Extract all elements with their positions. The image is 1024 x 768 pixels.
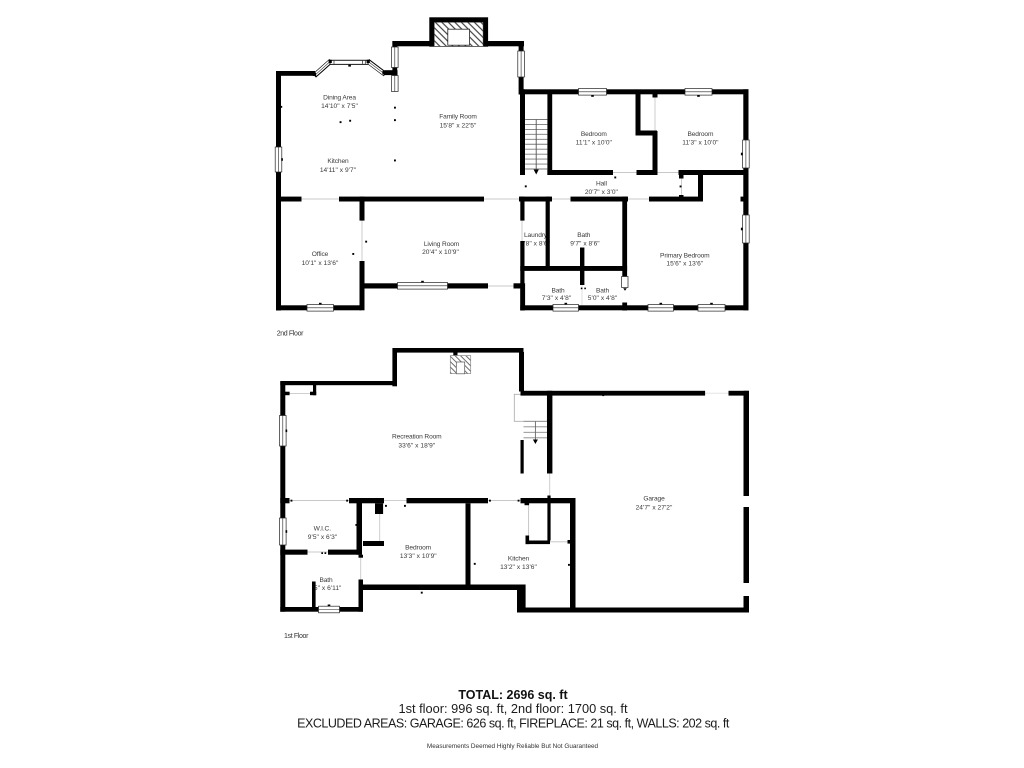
svg-text:15'6" x 13'6": 15'6" x 13'6" (666, 260, 703, 267)
svg-text:20'7" x 3'0": 20'7" x 3'0" (585, 189, 619, 196)
svg-text:Bath: Bath (596, 287, 610, 294)
svg-text:Family Room: Family Room (439, 114, 477, 121)
svg-text:1st floor: 996 sq. ft, 2nd flo: 1st floor: 996 sq. ft, 2nd floor: 1700 s… (398, 701, 628, 716)
svg-text:Bath: Bath (577, 232, 591, 239)
svg-text:Measurements Deemed Highly Rel: Measurements Deemed Highly Reliable But … (427, 743, 599, 750)
svg-text:TOTAL: 2696 sq. ft: TOTAL: 2696 sq. ft (458, 688, 568, 702)
svg-text:Laundry: Laundry (524, 232, 548, 239)
svg-text:Bath: Bath (319, 577, 333, 584)
svg-text:Garage: Garage (643, 496, 665, 503)
svg-text:Office: Office (312, 251, 329, 258)
svg-text:33'6" x 18'9": 33'6" x 18'9" (398, 442, 435, 449)
svg-text:2nd Floor: 2nd Floor (277, 331, 304, 338)
svg-text:10'1" x 13'6": 10'1" x 13'6" (302, 260, 339, 267)
svg-text:Living Room: Living Room (424, 241, 460, 248)
svg-text:Bedroom: Bedroom (687, 131, 714, 138)
svg-text:13'3" x 10'9": 13'3" x 10'9" (400, 553, 437, 560)
svg-text:Recreation Room: Recreation Room (392, 434, 442, 441)
svg-text:15'8" x 22'5": 15'8" x 22'5" (440, 122, 477, 129)
svg-text:14'11" x 9'7": 14'11" x 9'7" (320, 167, 357, 174)
svg-text:14'10" x 7'5": 14'10" x 7'5" (321, 103, 358, 110)
svg-text:9'5" x 6'3": 9'5" x 6'3" (308, 534, 338, 541)
svg-text:11'3" x 10'0": 11'3" x 10'0" (682, 139, 719, 146)
svg-text:1st Floor: 1st Floor (284, 633, 309, 640)
svg-text:5'0" x 4'8": 5'0" x 4'8" (588, 295, 618, 302)
svg-text:'5" x 6'11": '5" x 6'11" (313, 585, 342, 592)
svg-text:11'1" x 10'0": 11'1" x 10'0" (576, 139, 613, 146)
svg-text:13'2" x 13'6": 13'2" x 13'6" (500, 564, 537, 571)
svg-text:Kitchen: Kitchen (508, 555, 530, 562)
svg-text:Kitchen: Kitchen (327, 158, 349, 165)
svg-text:W.I.C.: W.I.C. (314, 526, 332, 533)
svg-text:20'4" x 10'9": 20'4" x 10'9" (422, 249, 459, 256)
svg-text:Bath: Bath (551, 287, 565, 294)
svg-text:7'3" x 4'8": 7'3" x 4'8" (542, 295, 572, 302)
svg-text:Bedroom: Bedroom (581, 131, 608, 138)
svg-text:9'7" x 8'6": 9'7" x 8'6" (570, 241, 600, 248)
svg-text:24'7" x 27'2": 24'7" x 27'2" (636, 504, 673, 511)
svg-text:EXCLUDED AREAS: GARAGE: 626 sq: EXCLUDED AREAS: GARAGE: 626 sq. ft, FIRE… (297, 717, 730, 731)
svg-text:Hall: Hall (596, 180, 608, 187)
svg-text:Bedroom: Bedroom (405, 544, 432, 551)
svg-text:Primary Bedroom: Primary Bedroom (660, 252, 710, 259)
svg-text:Dining Area: Dining Area (323, 95, 356, 102)
